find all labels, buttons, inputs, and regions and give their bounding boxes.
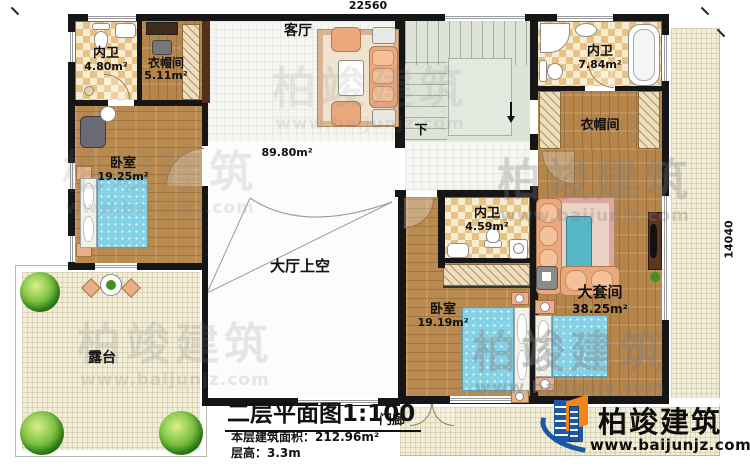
room-label-bath-top-right: 内卫 7.84m² bbox=[565, 44, 635, 72]
room-name: 内卫 bbox=[565, 44, 635, 59]
room-name: 衣帽间 bbox=[134, 56, 198, 70]
plan-title: 二层平面图1:100 bbox=[225, 394, 421, 432]
bed-pillow bbox=[538, 320, 549, 343]
toilet-tank-icon bbox=[92, 23, 110, 30]
window-top-1 bbox=[88, 14, 136, 21]
room-label-hall-void: 大厅上空 bbox=[252, 258, 348, 276]
room-label-terrace: 露台 bbox=[72, 350, 132, 367]
room-name: 卧室 bbox=[88, 156, 158, 171]
window-left-2 bbox=[68, 163, 75, 189]
window-right-1 bbox=[662, 35, 669, 81]
lamp-icon bbox=[515, 294, 524, 303]
plant-small-icon bbox=[650, 272, 660, 282]
table-plant-icon bbox=[106, 280, 116, 290]
room-label-closet-top-right: 衣帽间 bbox=[568, 118, 632, 133]
lamp-icon bbox=[515, 392, 524, 401]
dimension-tick bbox=[11, 7, 19, 15]
bed-pillow bbox=[517, 350, 527, 380]
armchair-bottom-icon bbox=[331, 101, 361, 126]
tree-icon bbox=[20, 272, 60, 312]
floor-area-value: 212.96m² bbox=[315, 430, 379, 444]
sofa-cushion bbox=[539, 226, 558, 246]
room-area: 19.25m² bbox=[88, 171, 158, 184]
bed-left-mattress bbox=[97, 178, 148, 248]
room-label-closet-top-left: 衣帽间 5.11m² bbox=[134, 56, 198, 83]
door-gap-closet-tr bbox=[530, 100, 538, 134]
room-area: 7.84m² bbox=[565, 59, 635, 72]
balcony-right-floor bbox=[668, 28, 720, 398]
suite-side-table-top bbox=[541, 271, 552, 282]
room-area: 38.25m² bbox=[560, 302, 640, 316]
sink-icon bbox=[447, 243, 469, 258]
logo-building-bar bbox=[569, 406, 579, 442]
stair-landing bbox=[448, 58, 512, 136]
brand-name: 柏竣建筑 bbox=[598, 399, 722, 441]
window-left-3 bbox=[68, 236, 75, 262]
bathtub-inner bbox=[633, 29, 655, 81]
plan-floor-area: 本层建筑面积：212.96m² bbox=[231, 428, 379, 445]
plan-floor-height: 层高：3.3m bbox=[231, 444, 301, 461]
wall-bedroom-left-right bbox=[202, 103, 208, 270]
floor-area-label: 本层建筑面积： bbox=[231, 430, 315, 444]
dresser-icon bbox=[146, 22, 178, 35]
dimension-right: 14040 bbox=[724, 209, 737, 269]
floor-height-value: 3.3m bbox=[267, 446, 301, 460]
armchair-top-icon bbox=[331, 27, 361, 52]
sofa-cushion bbox=[539, 203, 558, 223]
room-area: 5.11m² bbox=[134, 70, 198, 83]
stairs-down-label: 下 bbox=[410, 123, 432, 138]
room-area-living: 89.80m² bbox=[252, 147, 322, 160]
room-label-bath-top-left: 内卫 4.80m² bbox=[75, 46, 137, 74]
lamp-icon bbox=[540, 302, 550, 312]
wardrobe-middle-edge bbox=[443, 286, 530, 288]
tree-icon bbox=[20, 411, 64, 455]
room-name: 内卫 bbox=[75, 46, 137, 61]
room-label-bath-middle: 内卫 4.59m² bbox=[452, 206, 522, 234]
drain-icon bbox=[84, 86, 94, 96]
dimension-top: 22560 bbox=[333, 0, 403, 13]
tv-wall-panel bbox=[202, 21, 210, 103]
lamp-icon bbox=[540, 379, 550, 389]
room-name: 大套间 bbox=[560, 284, 640, 302]
desk-item-icon bbox=[152, 40, 172, 55]
wardrobe-middle bbox=[443, 264, 530, 286]
room-area: 4.80m² bbox=[75, 61, 137, 74]
sofa-cushion bbox=[372, 50, 394, 66]
room-label-master-suite: 大套间 38.25m² bbox=[560, 284, 640, 316]
sink-icon bbox=[575, 23, 597, 37]
coffee-table-icon bbox=[338, 60, 364, 96]
master-bed-mattress bbox=[552, 315, 608, 377]
window-bottom-1 bbox=[450, 396, 516, 403]
sink-icon bbox=[115, 23, 136, 38]
room-name: 内卫 bbox=[452, 206, 522, 221]
sofa-cushion bbox=[372, 86, 394, 102]
tv-icon bbox=[650, 224, 657, 258]
room-area: 19.19m² bbox=[408, 317, 478, 330]
wall-bedroom-left-bottom bbox=[68, 263, 208, 270]
room-label-living: 客厅 bbox=[268, 23, 328, 40]
door-gap-bath-tl bbox=[108, 100, 134, 106]
room-label-bedroom-bottom: 卧室 19.19m² bbox=[408, 302, 478, 330]
side-table-icon bbox=[372, 109, 396, 126]
toilet-tank-icon bbox=[539, 60, 547, 82]
room-name: 卧室 bbox=[408, 302, 478, 317]
tree-icon bbox=[159, 411, 203, 455]
door-gap-bedroom-bottom bbox=[403, 190, 437, 197]
brand-logo-icon bbox=[536, 396, 594, 454]
toilet-icon bbox=[547, 63, 563, 80]
window-top-3 bbox=[557, 14, 613, 21]
window-top-2 bbox=[445, 14, 525, 21]
floor-plan: 柏竣建筑 www.baijunjz.com 柏竣建筑 www.baijunjz.… bbox=[0, 0, 750, 468]
side-table-icon bbox=[372, 27, 396, 44]
washer-drum bbox=[513, 243, 524, 254]
wall-bath-middle-left bbox=[438, 190, 445, 268]
stool-icon bbox=[100, 106, 116, 122]
window-left-1 bbox=[68, 32, 75, 62]
room-label-bedroom-left: 卧室 19.25m² bbox=[88, 156, 158, 184]
dimension-tick bbox=[701, 7, 709, 15]
wardrobe-top-right-right bbox=[638, 91, 660, 149]
wall-bedroom-left-top bbox=[75, 100, 202, 106]
wardrobe-top-right-left bbox=[539, 91, 561, 149]
balcony-slider-door bbox=[662, 196, 669, 320]
window-bedroom-left bbox=[95, 263, 137, 270]
room-area: 4.59m² bbox=[452, 221, 522, 234]
bed-pillow bbox=[538, 348, 549, 371]
stair-arrow-head bbox=[507, 116, 515, 127]
brand-site: www.baijunjz.com bbox=[590, 436, 750, 454]
floor-height-label: 层高： bbox=[231, 446, 267, 460]
corridor-floor bbox=[405, 141, 530, 193]
sofa-cushion bbox=[372, 68, 394, 84]
wall-hall-left bbox=[202, 270, 208, 406]
bed-pillow bbox=[517, 314, 527, 344]
chair-icon bbox=[80, 116, 106, 148]
bed-pillow bbox=[83, 216, 94, 242]
bed-pillow bbox=[83, 183, 94, 209]
